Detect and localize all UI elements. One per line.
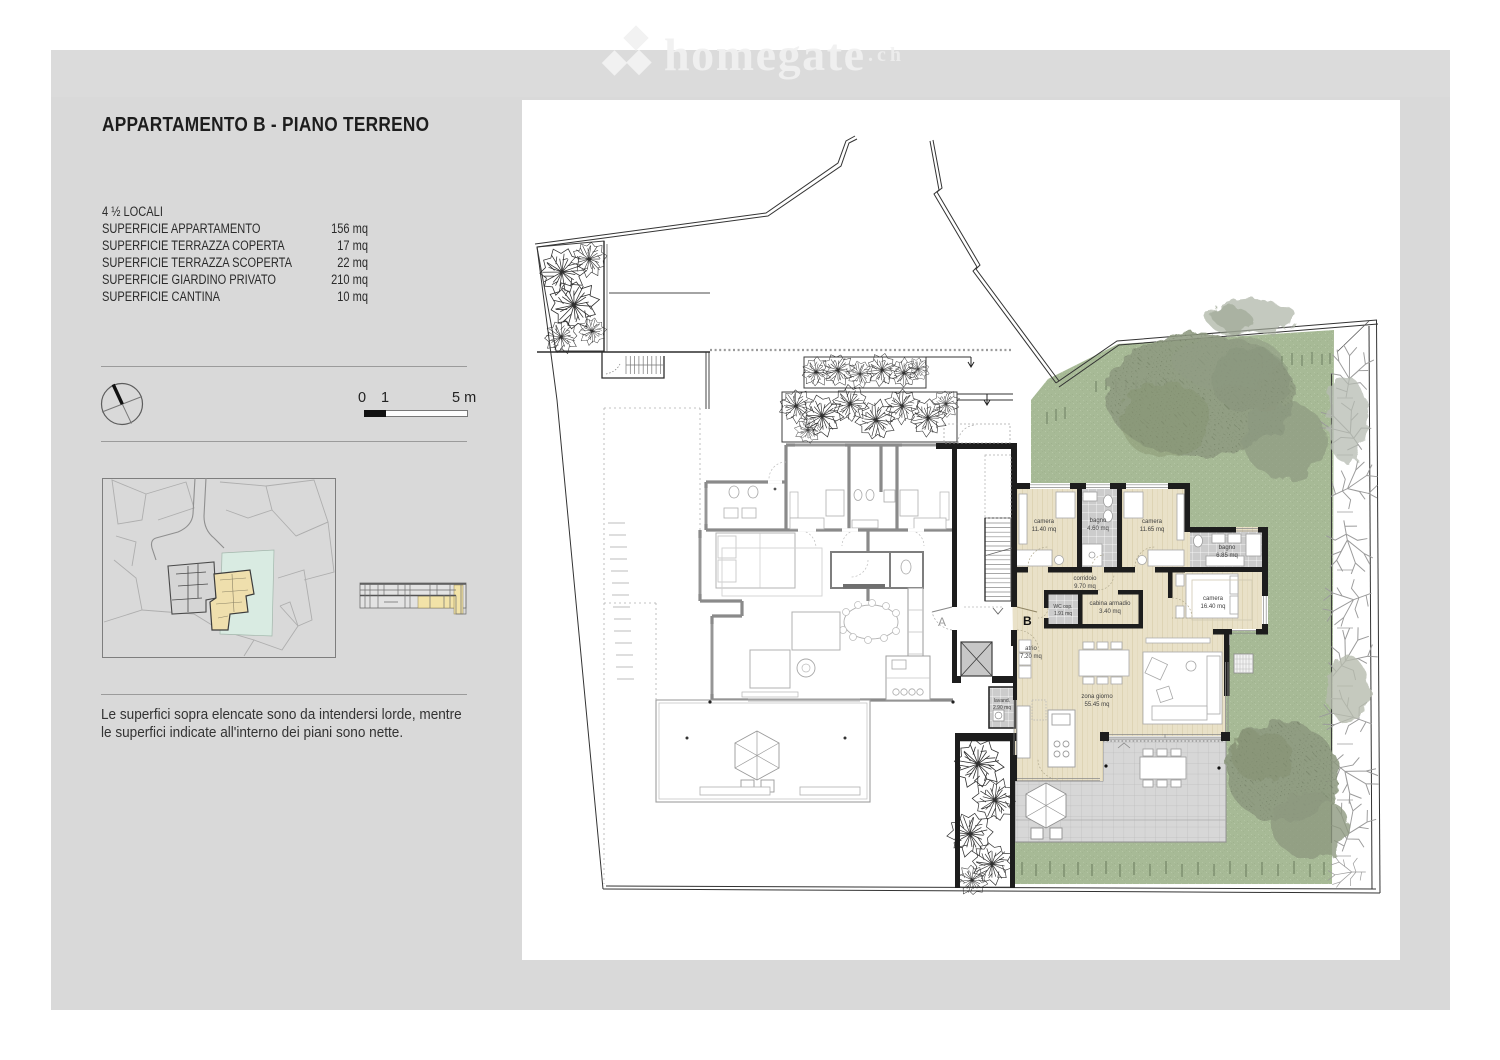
svg-text:bagno: bagno: [1090, 518, 1107, 524]
svg-text:16.40 mq: 16.40 mq: [1200, 604, 1225, 610]
svg-text:WC osp.: WC osp.: [1053, 604, 1072, 610]
svg-text:2.90 mq: 2.90 mq: [993, 705, 1011, 711]
svg-text:6.85 mq: 6.85 mq: [1216, 553, 1238, 559]
svg-text:camera: camera: [1034, 519, 1055, 525]
svg-text:.ch: .ch: [868, 44, 901, 66]
svg-text:1.91 mq: 1.91 mq: [1054, 611, 1072, 617]
svg-text:cabina armadio: cabina armadio: [1089, 601, 1131, 607]
svg-text:3.40 mq: 3.40 mq: [1099, 609, 1121, 615]
svg-text:55.45 mq: 55.45 mq: [1084, 702, 1109, 708]
svg-text:4.60 mq: 4.60 mq: [1087, 526, 1109, 532]
svg-text:lavand.: lavand.: [994, 698, 1010, 704]
svg-text:7.20 mq: 7.20 mq: [1020, 654, 1042, 660]
svg-text:zona giorno: zona giorno: [1081, 694, 1113, 700]
svg-text:B: B: [1023, 614, 1032, 628]
svg-text:A: A: [938, 615, 946, 629]
svg-text:11.40 mq: 11.40 mq: [1032, 527, 1057, 533]
svg-text:9.70 mq: 9.70 mq: [1074, 584, 1096, 590]
svg-text:camera: camera: [1142, 519, 1163, 525]
svg-text:bagno: bagno: [1219, 545, 1236, 551]
svg-text:corridoio: corridoio: [1073, 576, 1097, 582]
svg-text:atrio: atrio: [1025, 646, 1037, 652]
svg-text:camera: camera: [1203, 596, 1224, 602]
svg-text:homegate: homegate: [664, 29, 864, 80]
svg-text:11.65 mq: 11.65 mq: [1140, 527, 1165, 533]
